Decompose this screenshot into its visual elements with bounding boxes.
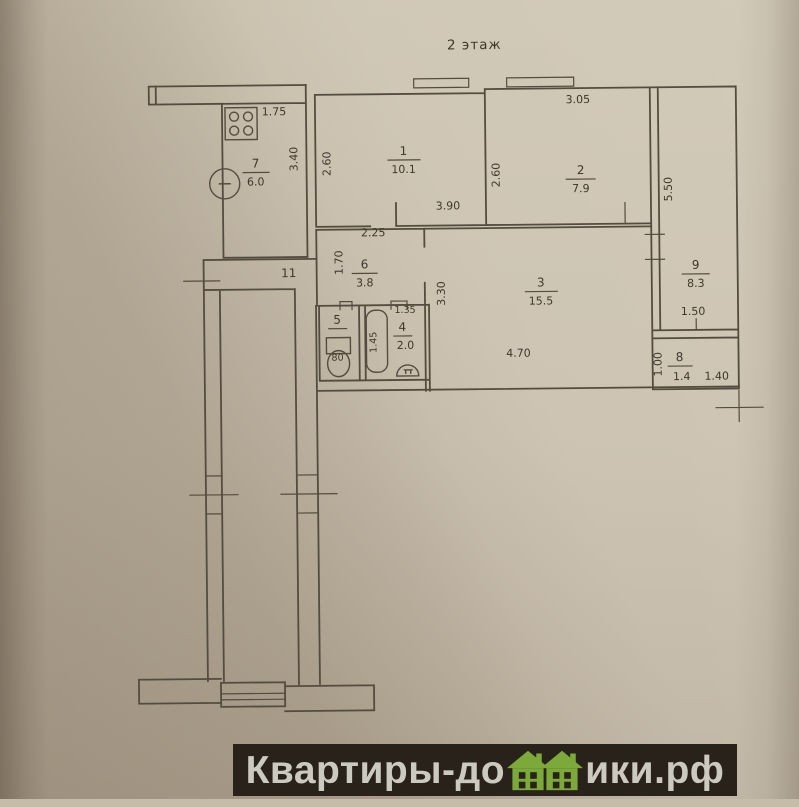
- watermark-text-right: ики.рф: [585, 751, 724, 790]
- room-4-number: 4: [398, 320, 406, 334]
- dim-kitchen-height: 3.40: [287, 147, 300, 172]
- room-2-area: 7.9: [572, 182, 590, 195]
- toilet-mark: 80: [331, 353, 343, 364]
- room-7-number: 7: [252, 156, 260, 170]
- dim-room3-height: 3.30: [435, 281, 448, 306]
- room-1-number: 1: [400, 144, 408, 158]
- room-2-number: 2: [577, 163, 585, 177]
- dim-room1-height: 2.60: [320, 151, 333, 176]
- room-8-number: 8: [676, 350, 684, 364]
- dim-room8-height: 1.00: [652, 352, 665, 377]
- watermark-bar: Квартиры-до ики.рф: [233, 744, 737, 796]
- stove-icon: [225, 107, 257, 139]
- watermark-text-left: Квартиры-до: [246, 751, 506, 790]
- corridor-11-number: 11: [281, 266, 296, 280]
- dim-room2-height: 2.60: [490, 163, 503, 188]
- watermark-houses: [506, 749, 584, 791]
- room-9-area: 8.3: [687, 277, 705, 290]
- dim-room8-width: 1.40: [704, 370, 729, 383]
- room-4-area: 2.0: [397, 339, 415, 352]
- room-7-area: 6.0: [247, 175, 265, 188]
- floor-plan: 2 этаж: [0, 0, 799, 803]
- room-3-area: 15.5: [529, 294, 554, 307]
- room-6-number: 6: [361, 257, 369, 271]
- room-1-area: 10.1: [391, 163, 416, 176]
- room-6-area: 3.8: [356, 276, 374, 289]
- dim-kitchen-width: 1.75: [262, 105, 287, 118]
- dim-room1-width: 3.90: [436, 199, 461, 212]
- walls: [133, 75, 767, 713]
- dim-hall-height: 1.70: [332, 250, 345, 275]
- dim-hall-width: 2.25: [361, 226, 386, 239]
- dim-loggia-height: 5.50: [662, 177, 675, 202]
- room-8-area: 1.4: [673, 370, 691, 383]
- dim-bath-width: 1.35: [394, 305, 415, 316]
- dim-bath-height: 1.45: [368, 332, 379, 353]
- room-3-number: 3: [537, 275, 545, 289]
- dim-room3-width: 4.70: [506, 347, 531, 360]
- room-9-number: 9: [692, 258, 700, 272]
- floor-plan-svg: 2 этаж: [0, 0, 799, 803]
- dim-room2-width: 3.05: [566, 93, 591, 106]
- house-icon: [540, 749, 584, 791]
- room-5-number: 5: [333, 313, 341, 327]
- dim-loggia-width: 1.50: [681, 305, 706, 318]
- room-labels: 7 6.0 1 10.1 2 7.9 3 15.5 6 3.8 9 8.3 8 …: [242, 141, 711, 388]
- plan-title: 2 этаж: [447, 37, 502, 54]
